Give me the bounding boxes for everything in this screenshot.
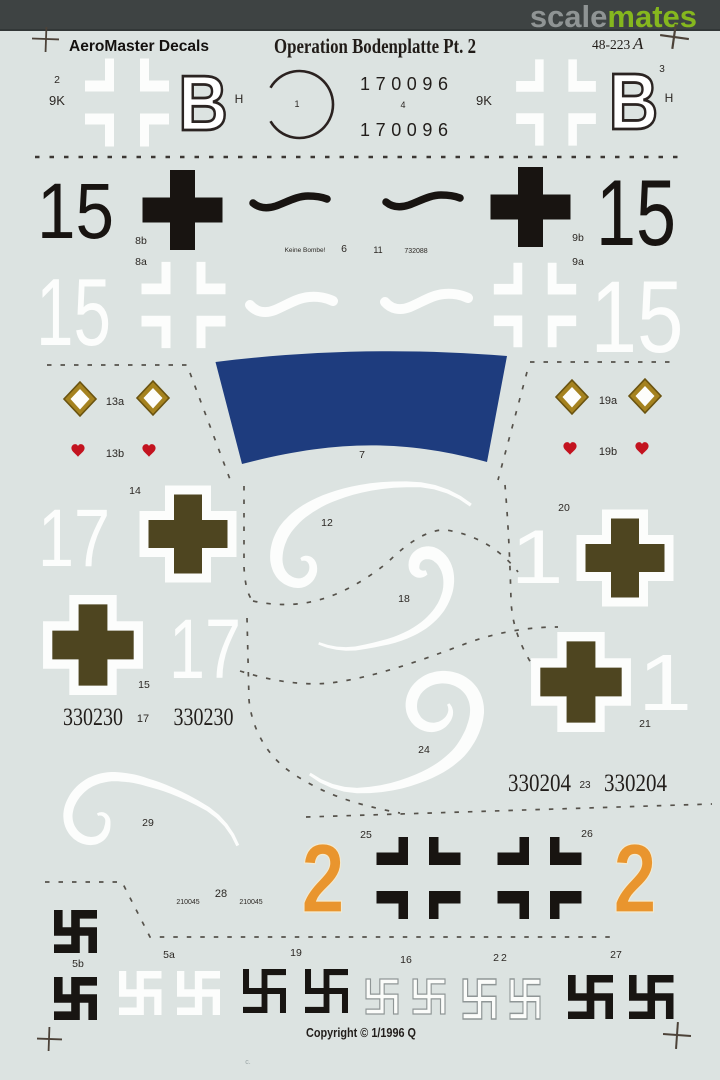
svg-text:c.: c. bbox=[245, 1059, 251, 1066]
svg-text:1: 1 bbox=[511, 515, 564, 600]
svg-text:27: 27 bbox=[610, 949, 622, 961]
svg-text:1: 1 bbox=[638, 637, 692, 727]
svg-text:9K: 9K bbox=[476, 93, 492, 108]
svg-text:H: H bbox=[665, 91, 674, 105]
svg-text:26: 26 bbox=[581, 828, 593, 840]
svg-text:21: 21 bbox=[639, 718, 651, 730]
svg-text:210045: 210045 bbox=[239, 899, 262, 906]
svg-text:22: 22 bbox=[493, 952, 509, 964]
svg-text:15: 15 bbox=[138, 679, 150, 691]
svg-text:19b: 19b bbox=[599, 446, 617, 458]
svg-text:23: 23 bbox=[579, 780, 591, 791]
svg-text:AeroMaster Decals: AeroMaster Decals bbox=[69, 38, 209, 55]
svg-text:330230: 330230 bbox=[63, 704, 123, 731]
svg-text:H: H bbox=[235, 92, 244, 106]
svg-text:B: B bbox=[609, 56, 659, 146]
svg-text:17: 17 bbox=[169, 602, 241, 696]
svg-text:15: 15 bbox=[591, 260, 684, 374]
svg-text:11: 11 bbox=[373, 245, 382, 255]
svg-text:7: 7 bbox=[359, 449, 365, 461]
svg-text:210045: 210045 bbox=[176, 899, 199, 906]
svg-text:18: 18 bbox=[398, 593, 410, 605]
svg-text:9K: 9K bbox=[49, 93, 65, 108]
svg-text:20: 20 bbox=[558, 502, 570, 514]
svg-text:14: 14 bbox=[129, 485, 141, 497]
svg-text:9b: 9b bbox=[572, 232, 584, 244]
svg-text:9a: 9a bbox=[572, 256, 584, 268]
svg-text:330204: 330204 bbox=[604, 770, 667, 797]
svg-text:2: 2 bbox=[301, 824, 344, 933]
svg-text:17: 17 bbox=[137, 713, 149, 725]
svg-text:330204: 330204 bbox=[508, 770, 571, 797]
svg-text:8b: 8b bbox=[135, 235, 147, 247]
svg-text:Operation Bodenplatte Pt. 2: Operation Bodenplatte Pt. 2 bbox=[274, 34, 476, 58]
svg-text:19a: 19a bbox=[599, 395, 618, 407]
svg-text:25: 25 bbox=[360, 829, 372, 841]
svg-text:2: 2 bbox=[54, 74, 60, 86]
svg-text:24: 24 bbox=[418, 744, 430, 756]
svg-text:1: 1 bbox=[294, 99, 299, 109]
svg-text:15: 15 bbox=[596, 160, 676, 265]
svg-text:2: 2 bbox=[613, 824, 656, 933]
svg-text:3: 3 bbox=[659, 64, 665, 75]
svg-text:15: 15 bbox=[36, 259, 111, 366]
svg-text:28: 28 bbox=[215, 888, 227, 900]
svg-text:B: B bbox=[178, 59, 228, 147]
svg-text:330230: 330230 bbox=[174, 704, 234, 731]
svg-text:Copyright © 1/1996 Q: Copyright © 1/1996 Q bbox=[306, 1026, 416, 1040]
svg-text:16: 16 bbox=[400, 954, 412, 966]
svg-text:29: 29 bbox=[142, 817, 154, 829]
svg-text:732088: 732088 bbox=[404, 248, 427, 255]
svg-text:5b: 5b bbox=[72, 958, 84, 970]
svg-text:Keine Bombe!: Keine Bombe! bbox=[285, 247, 326, 254]
svg-text:8a: 8a bbox=[135, 256, 147, 268]
svg-text:4: 4 bbox=[400, 100, 405, 110]
svg-text:13a: 13a bbox=[106, 396, 125, 408]
svg-text:5a: 5a bbox=[163, 949, 175, 961]
svg-text:6: 6 bbox=[341, 243, 347, 255]
svg-text:12: 12 bbox=[321, 517, 333, 529]
svg-text:A: A bbox=[632, 34, 644, 53]
svg-text:scalemates: scalemates bbox=[530, 0, 697, 34]
svg-text:15: 15 bbox=[37, 166, 114, 255]
svg-text:48-223: 48-223 bbox=[592, 37, 630, 52]
svg-text:17: 17 bbox=[38, 493, 110, 584]
svg-text:19: 19 bbox=[290, 947, 302, 959]
svg-text:13b: 13b bbox=[106, 448, 124, 460]
